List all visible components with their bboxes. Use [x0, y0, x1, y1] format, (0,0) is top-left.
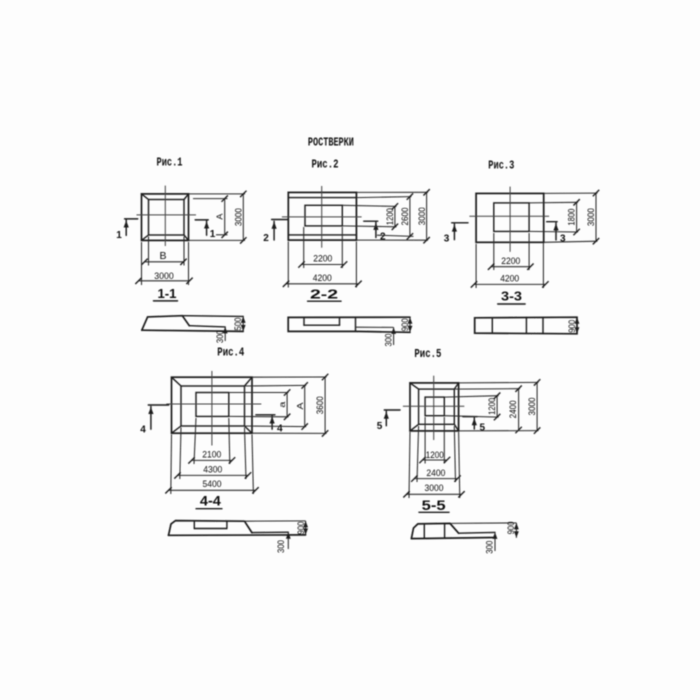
svg-text:3: 3 — [560, 234, 566, 245]
svg-text:300: 300 — [276, 540, 286, 553]
svg-text:2100: 2100 — [202, 449, 221, 460]
svg-text:4200: 4200 — [500, 273, 519, 284]
svg-text:2400: 2400 — [508, 400, 519, 418]
svg-text:5400: 5400 — [203, 479, 222, 490]
svg-text:a: a — [277, 401, 287, 407]
svg-text:A: A — [295, 402, 305, 409]
svg-text:900: 900 — [567, 320, 577, 333]
svg-text:300: 300 — [215, 330, 225, 343]
svg-text:900: 900 — [400, 318, 410, 331]
svg-text:3000: 3000 — [527, 398, 538, 416]
svg-text:3000: 3000 — [417, 207, 428, 225]
svg-text:2200: 2200 — [313, 253, 332, 264]
svg-text:2600: 2600 — [400, 208, 411, 226]
svg-text:3000: 3000 — [425, 483, 444, 494]
svg-text:1200: 1200 — [426, 450, 444, 461]
svg-text:РОСТВЕРКИ: РОСТВЕРКИ — [308, 137, 354, 150]
svg-text:4200: 4200 — [313, 273, 332, 284]
svg-text:1: 1 — [210, 229, 216, 240]
svg-text:3000: 3000 — [586, 208, 597, 226]
svg-text:1: 1 — [116, 230, 122, 241]
svg-text:Рис.2: Рис.2 — [312, 158, 339, 171]
svg-text:Рис.1: Рис.1 — [157, 156, 183, 169]
svg-text:3000: 3000 — [154, 271, 174, 282]
svg-text:1200: 1200 — [385, 208, 396, 225]
svg-text:3600: 3600 — [315, 396, 326, 414]
svg-text:Рис.3: Рис.3 — [488, 160, 514, 173]
svg-text:2200: 2200 — [501, 256, 520, 267]
svg-text:A: A — [215, 213, 225, 219]
svg-text:2400: 2400 — [426, 468, 445, 479]
svg-text:4300: 4300 — [203, 464, 222, 475]
svg-text:2-2: 2-2 — [310, 286, 338, 301]
svg-text:Рис.5: Рис.5 — [414, 348, 441, 361]
svg-text:5-5: 5-5 — [422, 498, 447, 513]
svg-text:300: 300 — [485, 541, 495, 554]
svg-text:300: 300 — [384, 334, 394, 347]
svg-text:1-1: 1-1 — [158, 286, 177, 301]
svg-text:3000: 3000 — [233, 208, 244, 226]
svg-text:4: 4 — [140, 425, 146, 436]
svg-text:5: 5 — [480, 423, 486, 434]
svg-text:3-3: 3-3 — [501, 288, 522, 303]
svg-text:Рис.4: Рис.4 — [217, 347, 244, 360]
svg-text:900: 900 — [296, 522, 306, 535]
svg-text:2: 2 — [263, 233, 269, 244]
svg-text:900: 900 — [506, 521, 516, 534]
svg-text:5: 5 — [377, 421, 383, 432]
svg-text:4-4: 4-4 — [200, 494, 222, 509]
svg-text:1200: 1200 — [487, 398, 498, 415]
svg-text:В: В — [159, 250, 166, 262]
svg-text:1800: 1800 — [567, 209, 578, 226]
svg-text:2: 2 — [380, 232, 386, 243]
svg-text:3: 3 — [444, 234, 450, 245]
svg-text:500: 500 — [233, 318, 243, 331]
